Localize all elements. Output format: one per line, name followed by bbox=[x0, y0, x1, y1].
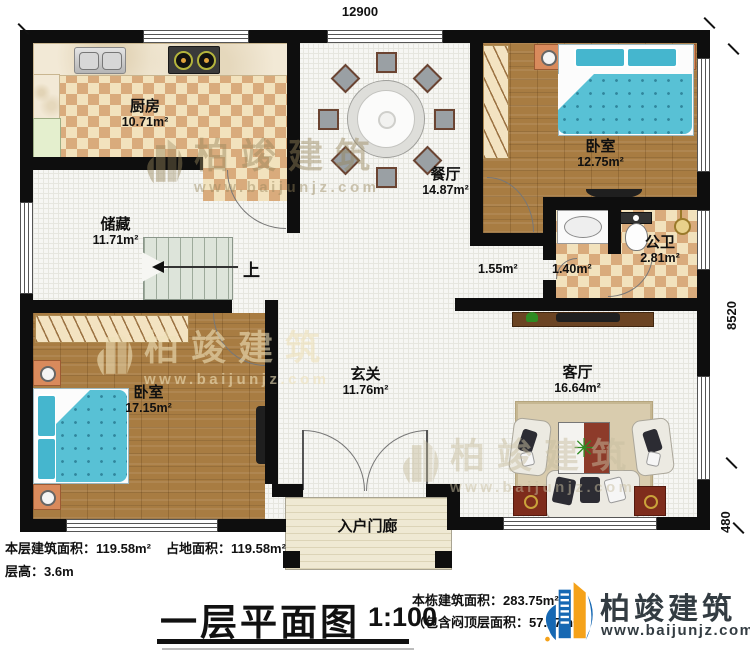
window bbox=[697, 376, 710, 480]
window bbox=[503, 517, 657, 530]
floor-height-note: 层高：3.6m bbox=[5, 561, 74, 580]
wall bbox=[20, 300, 232, 313]
room-label-porch: 入户门廊 bbox=[285, 518, 450, 535]
porch-pillar bbox=[435, 551, 452, 568]
door-leaf bbox=[302, 430, 304, 490]
pillow bbox=[36, 394, 57, 438]
pillow bbox=[626, 47, 678, 68]
plant-icon: ✳ bbox=[573, 435, 595, 461]
wall bbox=[543, 197, 697, 210]
dim-tick bbox=[725, 457, 737, 469]
floorplan-canvas: 上 bbox=[0, 0, 750, 651]
dining-table-center bbox=[378, 111, 396, 129]
nightstand bbox=[33, 360, 61, 386]
wall bbox=[272, 484, 303, 497]
dining-chair bbox=[376, 52, 397, 73]
sofa-cushion bbox=[580, 477, 600, 503]
side-table bbox=[513, 486, 547, 516]
stairs-up-label: 上 bbox=[243, 256, 260, 281]
brand-website: www.baijunjz.com bbox=[601, 622, 750, 639]
room-label-storage: 储藏11.71m² bbox=[63, 216, 168, 248]
room-label-bedroom-bottom: 卧室17.15m² bbox=[96, 384, 201, 416]
shower-head-icon bbox=[674, 218, 691, 235]
floor-area-note: 本层建筑面积：119.58m² bbox=[5, 538, 151, 557]
kitchen-counter bbox=[33, 43, 289, 76]
wall bbox=[470, 43, 483, 233]
dimension-right-offset: 480 bbox=[718, 511, 733, 533]
kitchen-sink bbox=[74, 47, 126, 74]
dimension-right: 8520 bbox=[724, 301, 739, 330]
wall bbox=[33, 157, 203, 170]
title-underline bbox=[157, 639, 409, 644]
stair-arrow-icon bbox=[152, 261, 164, 273]
burner-icon bbox=[174, 51, 193, 70]
blanket-fold bbox=[56, 390, 90, 424]
window bbox=[20, 202, 33, 294]
wall bbox=[265, 300, 278, 484]
sink-basin bbox=[79, 52, 99, 70]
page-title: 一层平面图 bbox=[160, 592, 360, 646]
fridge bbox=[33, 118, 61, 158]
armchair-pillow bbox=[520, 451, 536, 467]
dimension-top: 12900 bbox=[300, 4, 420, 19]
tv bbox=[556, 313, 620, 322]
room-label-dining: 餐厅14.87m² bbox=[393, 166, 498, 198]
window bbox=[327, 30, 443, 43]
wall bbox=[287, 43, 300, 233]
door-leaf bbox=[426, 430, 428, 490]
window bbox=[143, 30, 249, 43]
burner-icon bbox=[197, 51, 216, 70]
wardrobe bbox=[35, 315, 189, 343]
wash-basin-icon bbox=[564, 216, 602, 238]
wardrobe bbox=[483, 45, 509, 159]
dining-chair bbox=[318, 109, 339, 130]
room-label-hall: 玄关11.76m² bbox=[313, 366, 418, 398]
floorplan-drawing: 上 bbox=[0, 0, 750, 585]
dim-tick bbox=[732, 522, 744, 534]
side-table bbox=[634, 486, 666, 516]
stove-icon bbox=[168, 46, 220, 74]
brand-logo-icon bbox=[540, 580, 596, 651]
sink-basin bbox=[102, 52, 122, 70]
dim-tick bbox=[727, 43, 739, 55]
building-area-note: 本栋建筑面积：283.75m² bbox=[412, 590, 559, 609]
coffee-table: ✳ bbox=[558, 422, 610, 474]
stair-direction-line bbox=[162, 266, 238, 268]
window bbox=[66, 519, 218, 532]
pillow bbox=[36, 437, 57, 481]
wall bbox=[543, 210, 556, 260]
tv bbox=[256, 406, 265, 464]
room-label-wash: 1.40m² bbox=[552, 262, 592, 276]
room-label-bath: 公卫2.81m² bbox=[618, 234, 702, 266]
dim-tick bbox=[703, 17, 715, 29]
dining-chair bbox=[434, 109, 455, 130]
wall bbox=[455, 298, 710, 311]
room-label-living: 客厅16.64m² bbox=[525, 364, 630, 396]
nightstand bbox=[33, 484, 61, 510]
room-label-kitchen: 厨房10.71m² bbox=[95, 98, 195, 130]
pillow bbox=[574, 47, 626, 68]
blanket-fold bbox=[558, 74, 594, 110]
land-area-note: 占地面积：119.58m² bbox=[166, 538, 286, 557]
room-label-bedroom-top: 卧室12.75m² bbox=[548, 138, 653, 170]
title-underline-thin bbox=[162, 648, 414, 650]
room-label-corridor: 1.55m² bbox=[478, 262, 518, 276]
kitchen-counter-left bbox=[33, 74, 60, 120]
window bbox=[697, 58, 710, 172]
cabinet-plant-icon bbox=[526, 312, 538, 322]
